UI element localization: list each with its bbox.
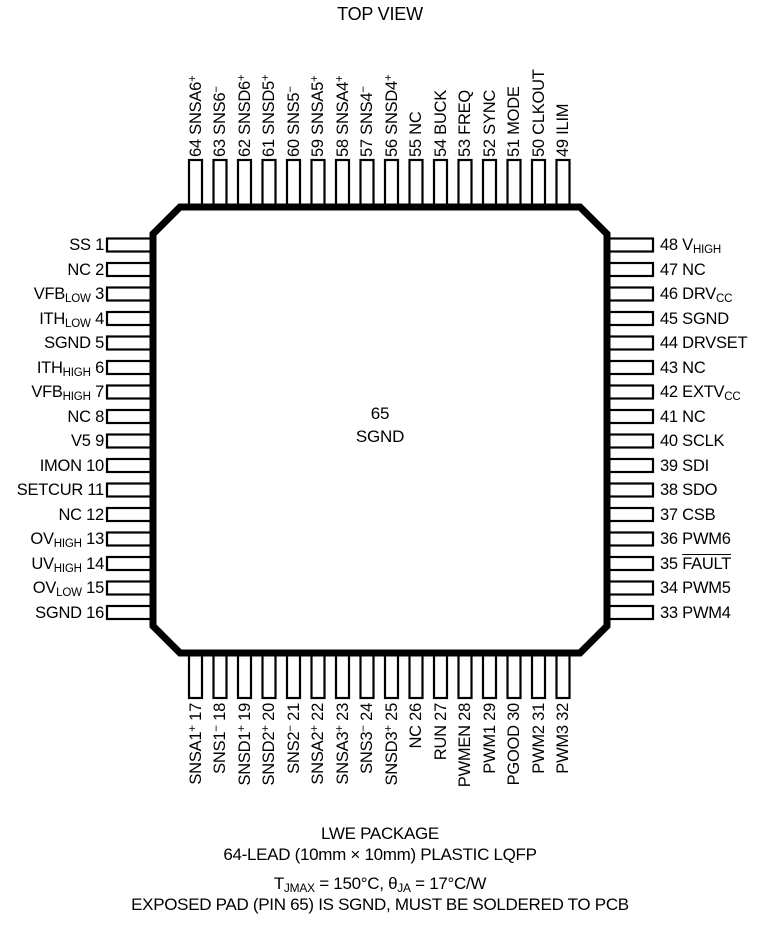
pin-label-16: SGND 16 — [35, 603, 104, 623]
pin-label-53: 53 FREQ — [455, 45, 475, 157]
pin-label-44: 44 DRVSET — [660, 333, 747, 353]
pin-label-27: RUN 27 — [431, 703, 451, 813]
pin-label-4: ITHLOW 4 — [39, 309, 104, 329]
pin-label-20: SNSD2+ 20 — [259, 703, 279, 813]
pin-label-2: NC 2 — [67, 260, 104, 280]
pin-label-63: 63 SNS6− — [210, 45, 230, 157]
pin-label-29: PWM1 29 — [480, 703, 500, 813]
pin-label-60: 60 SNS5− — [284, 45, 304, 157]
pin-label-38: 38 SDO — [660, 480, 717, 500]
pin-label-62: 62 SNSD6+ — [235, 45, 255, 157]
pin-label-5: SGND 5 — [44, 333, 104, 353]
thermal-spec: TJMAX = 150°C, θJA = 17°C/W — [0, 873, 760, 894]
pin-label-57: 57 SNS4− — [357, 45, 377, 157]
pin-label-31: PWM2 31 — [529, 703, 549, 813]
pin-label-11: SETCUR 11 — [17, 480, 104, 500]
pin-label-26: NC 26 — [406, 703, 426, 813]
pin-label-47: 47 NC — [660, 260, 706, 280]
pin-label-37: 37 CSB — [660, 505, 715, 525]
pin-label-35: 35 FAULT — [660, 554, 731, 574]
pin-label-36: 36 PWM6 — [660, 529, 731, 549]
pin-label-42: 42 EXTVCC — [660, 382, 741, 402]
pin-label-25: SNSD3+ 25 — [382, 703, 402, 813]
pin-label-32: PWM3 32 — [553, 703, 573, 813]
pin-label-23: SNSA3+ 23 — [333, 703, 353, 813]
pin-label-49: 49 ILIM — [553, 45, 573, 157]
package-description: 64-LEAD (10mm × 10mm) PLASTIC LQFP — [0, 844, 760, 865]
pin-labels-layer: SS 1NC 2VFBLOW 3ITHLOW 4SGND 5ITHHIGH 6V… — [0, 0, 760, 925]
pin-label-15: OVLOW 15 — [33, 578, 104, 598]
pin-label-21: SNS2− 21 — [284, 703, 304, 813]
pin-label-59: 59 SNSA5+ — [308, 45, 328, 157]
pin-label-10: IMON 10 — [40, 456, 104, 476]
pin-label-17: SNSA1+ 17 — [186, 703, 206, 813]
exposed-pad-number: 65 — [0, 402, 760, 425]
pin-label-61: 61 SNSD5+ — [259, 45, 279, 157]
exposed-pad-note: EXPOSED PAD (PIN 65) IS SGND, MUST BE SO… — [0, 894, 760, 915]
pin-label-3: VFBLOW 3 — [34, 284, 104, 304]
pin-label-6: ITHHIGH 6 — [37, 358, 104, 378]
pin-label-56: 56 SNSD4+ — [382, 45, 402, 157]
pin-label-46: 46 DRVCC — [660, 284, 732, 304]
pin-label-12: NC 12 — [58, 505, 104, 525]
exposed-pad-name: SGND — [0, 425, 760, 448]
pin-label-58: 58 SNSA4+ — [333, 45, 353, 157]
pin-label-64: 64 SNSA6+ — [186, 45, 206, 157]
pin-label-28: PWMEN 28 — [455, 703, 475, 813]
pin-label-24: SNS3− 24 — [357, 703, 377, 813]
exposed-pad-label: 65 SGND — [0, 402, 760, 448]
pin-label-30: PGOOD 30 — [504, 703, 524, 813]
package-footer: LWE PACKAGE 64-LEAD (10mm × 10mm) PLASTI… — [0, 823, 760, 915]
package-name: LWE PACKAGE — [0, 823, 760, 844]
pin-label-55: 55 NC — [406, 45, 426, 157]
pin-label-52: 52 SYNC — [480, 45, 500, 157]
pin-label-39: 39 SDI — [660, 456, 709, 476]
pin-label-34: 34 PWM5 — [660, 578, 731, 598]
pin-label-50: 50 CLKOUT — [529, 45, 549, 157]
pin-label-18: SNS1− 18 — [210, 703, 230, 813]
pin-label-51: 51 MODE — [504, 45, 524, 157]
pin-label-1: SS 1 — [69, 235, 104, 255]
pinout-diagram: TOP VIEW SS 1NC 2VFBLOW 3ITHLOW 4SGND 5I… — [0, 0, 760, 925]
pin-label-13: OVHIGH 13 — [30, 529, 104, 549]
pin-label-43: 43 NC — [660, 358, 706, 378]
pin-label-48: 48 VHIGH — [660, 235, 721, 255]
pin-label-54: 54 BUCK — [431, 45, 451, 157]
pin-label-45: 45 SGND — [660, 309, 729, 329]
pin-label-14: UVHIGH 14 — [31, 554, 104, 574]
pin-label-33: 33 PWM4 — [660, 603, 731, 623]
pin-label-19: SNSD1+ 19 — [235, 703, 255, 813]
pin-label-22: SNSA2+ 22 — [308, 703, 328, 813]
pin-label-7: VFBHIGH 7 — [31, 382, 104, 402]
